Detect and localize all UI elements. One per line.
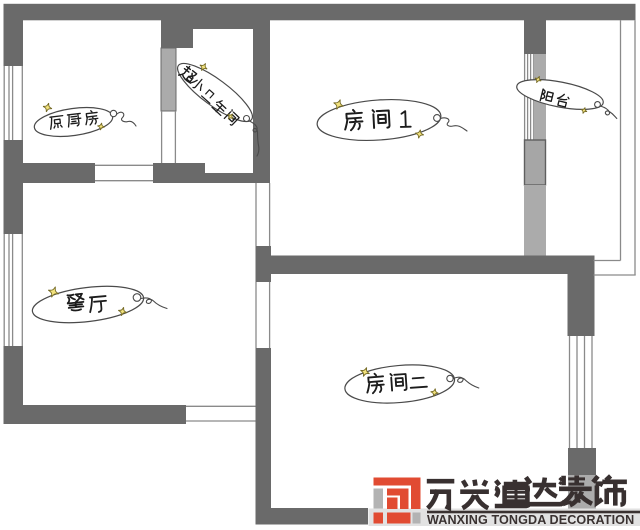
svg-text:WANXING TONGDA DECORATION: WANXING TONGDA DECORATION bbox=[427, 513, 634, 527]
